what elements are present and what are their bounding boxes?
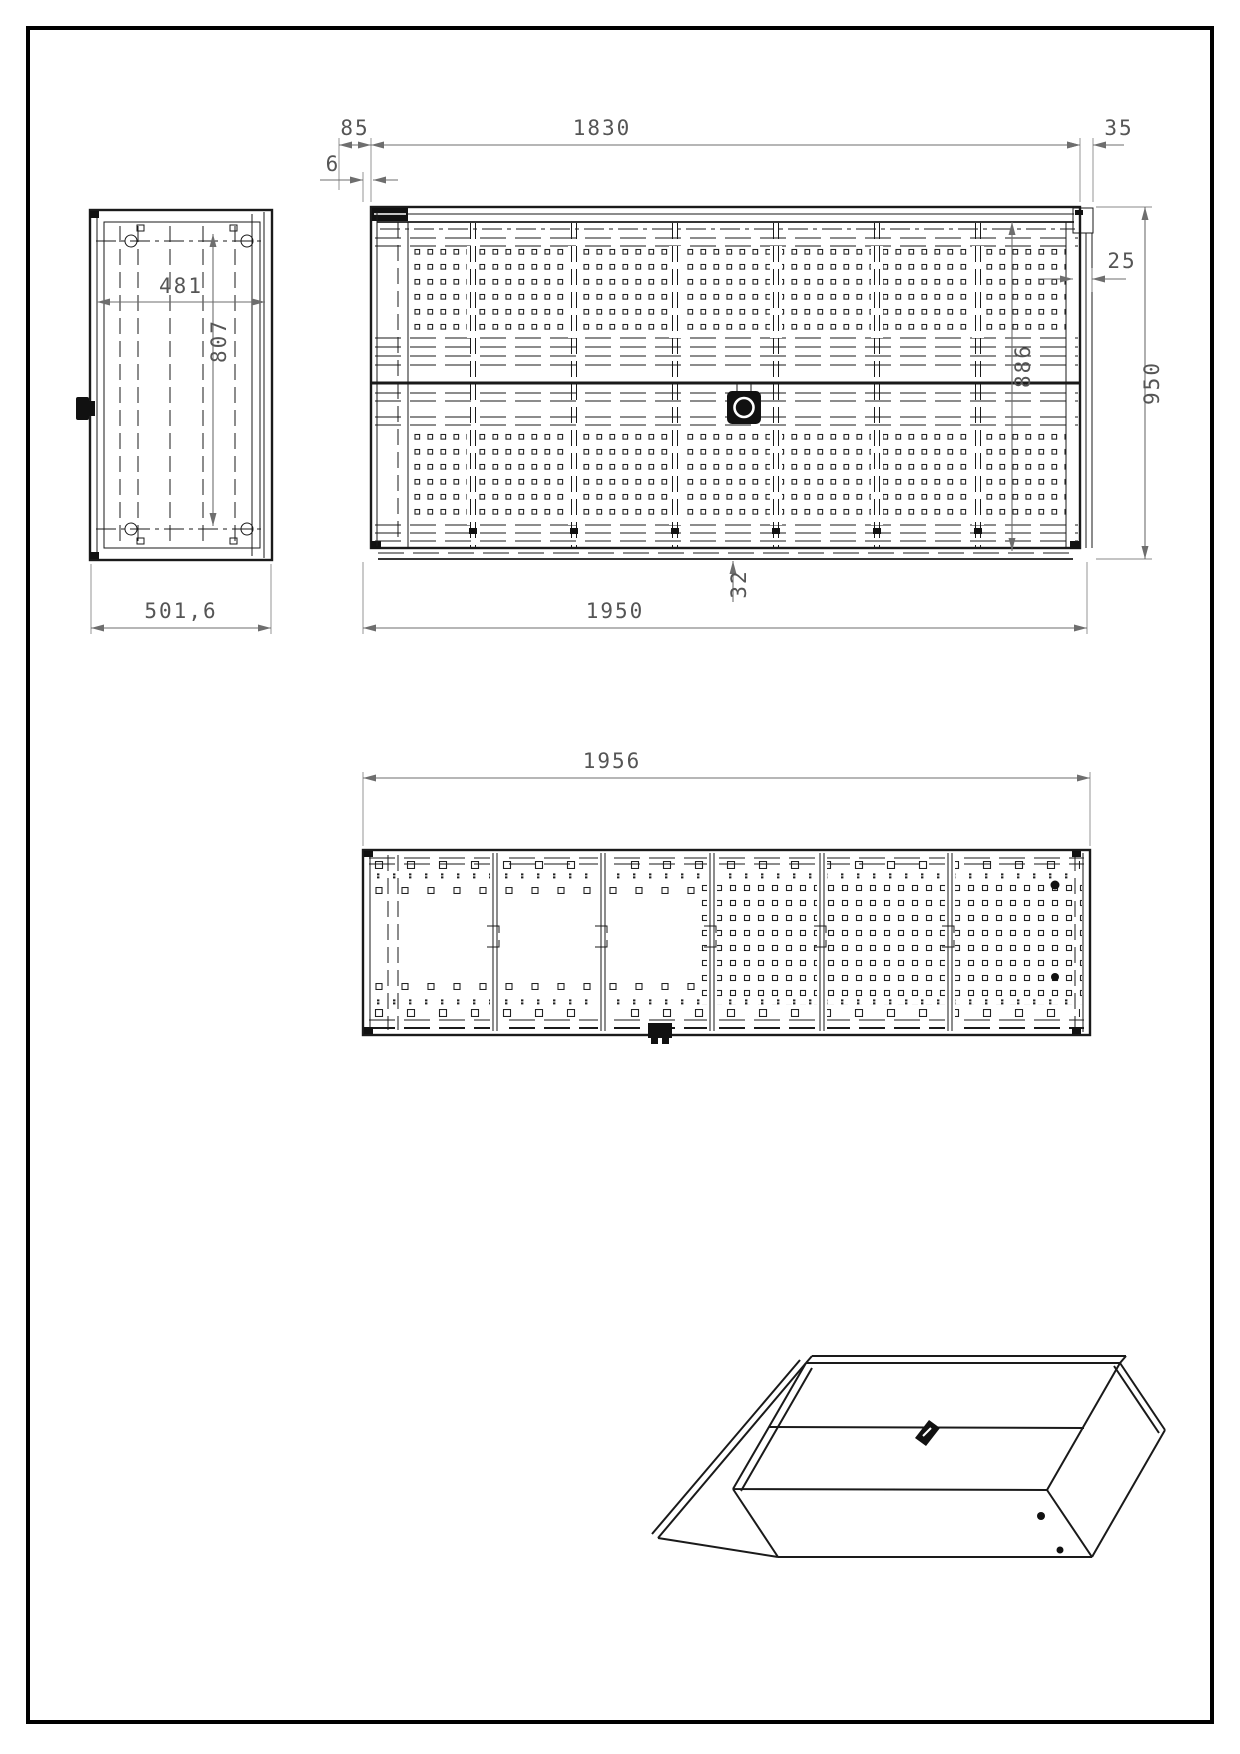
drawing-canvas: 481 807 501,6 (0, 0, 1240, 1754)
dim-label-950: 950 (1140, 361, 1164, 405)
dim-label-1956: 1956 (583, 749, 642, 773)
dim-label-6: 6 (326, 152, 341, 176)
drawing-sheet: 481 807 501,6 (0, 0, 1240, 1754)
perforation-row (374, 1009, 1080, 1017)
perforation-row (374, 983, 700, 990)
perforation-field-upper (414, 248, 1066, 336)
perforation-row (374, 887, 700, 894)
dim-label-1950: 1950 (586, 599, 645, 623)
dim-label-501-6: 501,6 (144, 599, 217, 623)
dim-label-1830: 1830 (573, 116, 632, 140)
dim-label-25: 25 (1107, 249, 1136, 273)
mounting-hole (1051, 881, 1060, 890)
perforation-field-lower (414, 433, 1066, 523)
mounting-hole (1057, 1547, 1064, 1554)
dim-label-886: 886 (1011, 344, 1035, 388)
dim-label-32: 32 (727, 569, 751, 598)
corner-fitting (90, 211, 99, 218)
perforation-row (374, 861, 1080, 869)
corner-fitting (90, 552, 99, 559)
dim-label-35: 35 (1104, 116, 1133, 140)
dim-label-481: 481 (159, 274, 203, 298)
perforation-field-dense (701, 884, 1082, 1005)
mounting-hole (1051, 973, 1059, 981)
perforation-row (374, 873, 1080, 879)
mounting-hole (1037, 1512, 1045, 1520)
dim-label-85: 85 (340, 116, 369, 140)
dim-label-807: 807 (207, 319, 231, 363)
